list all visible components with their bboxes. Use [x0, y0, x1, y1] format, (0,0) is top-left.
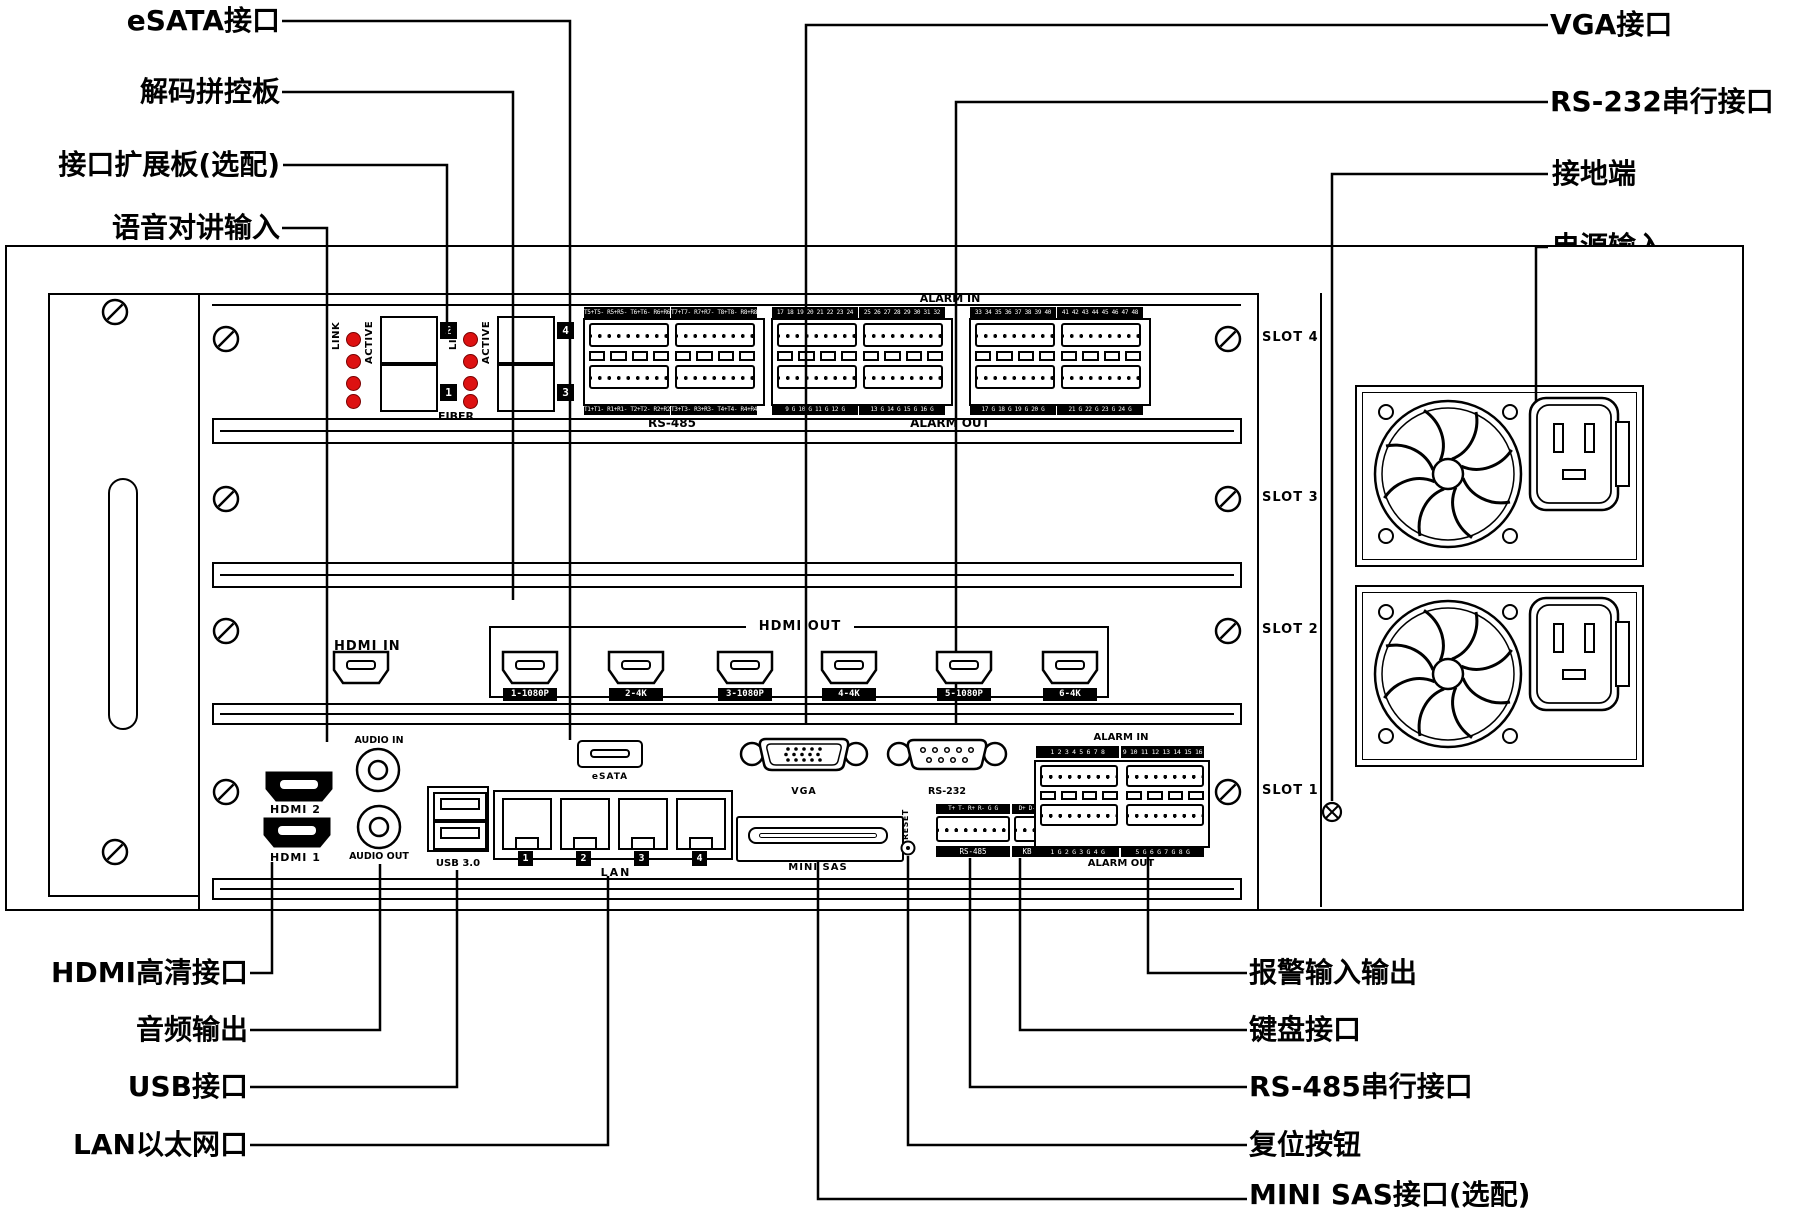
lan-port [618, 798, 668, 850]
slot2-label: SLOT 2 [1262, 622, 1319, 637]
hdmi-out-recess [489, 626, 1109, 698]
terminal-connector [589, 323, 669, 347]
alarm1-header: 9 10 11 12 13 14 15 16 [1121, 746, 1204, 758]
terminal-connector [863, 365, 943, 389]
hdmi-out-port-label: 5-1080P [937, 688, 991, 701]
lan-port [502, 798, 552, 850]
fiber-label: FIBER [427, 410, 485, 423]
mini-sas-connector [748, 827, 888, 844]
usb-label: USB 3.0 [428, 858, 488, 869]
hdmi-out-port-label: 1-1080P [503, 688, 557, 701]
alarm1-in-title: ALARM IN [1078, 732, 1164, 743]
terminal-connector [1061, 323, 1141, 347]
lan-port-badge: 1 [518, 851, 533, 866]
alarm-out-footer: 21 G 22 G 23 G 24 G [1057, 404, 1143, 415]
rs485-header: T7+T7- R7+R7- T8+T8- R8+R8- [671, 307, 757, 318]
alarm-in-header: 41 42 43 44 45 46 47 48 [1057, 307, 1143, 318]
fiber-led [463, 332, 478, 347]
fiber-badge-1: 1 [440, 384, 457, 401]
mini-sas-label: MINI SAS [776, 862, 860, 873]
alarm-in-header: 25 26 27 28 29 30 31 32 [859, 307, 945, 318]
terminal-connector [975, 365, 1055, 389]
rs485-board-label: RS-485 [627, 416, 717, 430]
terminal-connector [1126, 765, 1204, 787]
slot-rail-bottom [212, 878, 1242, 900]
hdmi-out-port-label: 3-1080P [718, 688, 772, 701]
power-supply-2 [1355, 585, 1644, 767]
sfp-cage [380, 364, 438, 412]
alarm1-footer: 5 G 6 G 7 G 8 G [1121, 846, 1204, 857]
slot-rail-4-3 [212, 418, 1242, 444]
terminal-connector [777, 365, 857, 389]
jumper-row [863, 351, 943, 361]
fiber-link-label-1: LINK [331, 300, 342, 350]
jumper-row [675, 351, 755, 361]
alarm-in-header: 17 18 19 20 21 22 23 24 [772, 307, 858, 318]
terminal-connector [863, 323, 943, 347]
slot-rail-2-1 [212, 703, 1242, 725]
fiber-active-label-2: ACTIVE [481, 300, 492, 364]
fiber-led [346, 332, 361, 347]
alarm-in-header: 33 34 35 36 37 38 39 40 [970, 307, 1056, 318]
alarm1-out-title: ALARM OUT [1078, 858, 1164, 869]
alarm-out-footer: 9 G 10 G 11 G 12 G [772, 404, 858, 415]
fiber-led [346, 354, 361, 369]
terminal-connector [936, 816, 1010, 842]
slot3-label: SLOT 3 [1262, 490, 1319, 505]
reset-label: RESET [901, 794, 910, 840]
lan-port [560, 798, 610, 850]
serial-header: T+ T- R+ R- G G [936, 804, 1010, 814]
hdmi2-label: HDMI 2 [270, 803, 332, 816]
fiber-badge-4: 4 [557, 322, 574, 339]
terminal-connector [777, 323, 857, 347]
jumper-row [975, 351, 1055, 361]
jumper-row [1061, 351, 1141, 361]
terminal-connector [1040, 765, 1118, 787]
callout-audio-out: 音频输出 [30, 1013, 248, 1047]
fiber-led [463, 394, 478, 409]
rs485-header: T5+T5- R5+R5- T6+T6- R6+R6- [584, 307, 670, 318]
terminal-connector [1061, 365, 1141, 389]
alarm1-header: 1 2 3 4 5 6 7 8 [1036, 746, 1119, 758]
leader-lan [250, 876, 608, 1145]
hdmi-out-port-label: 4-4K [822, 688, 876, 701]
fiber-link-label-2: LINK [448, 300, 459, 350]
callout-ground: 接地端 [1552, 157, 1636, 191]
esata-label: eSATA [586, 772, 634, 782]
fiber-led [463, 376, 478, 391]
callout-esata: eSATA接口 [30, 4, 280, 38]
usb-port [433, 792, 487, 821]
terminal-connector [975, 323, 1055, 347]
power-supply-1 [1355, 385, 1644, 567]
alarm-out-footer: 17 G 18 G 19 G 20 G [970, 404, 1056, 415]
sfp-cage [497, 364, 555, 412]
lan-port [676, 798, 726, 850]
lan-port-badge: 2 [576, 851, 591, 866]
callout-reset: 复位按钮 [1249, 1128, 1361, 1162]
esata-port [577, 740, 643, 768]
callout-rs232: RS-232串行接口 [1550, 85, 1774, 119]
audio-out-label: AUDIO OUT [344, 851, 414, 862]
hdmi-out-label: HDMI OUT [746, 619, 854, 634]
serial-footer-rs485: RS-485 [936, 846, 1010, 857]
fiber-led [346, 394, 361, 409]
callout-lan: LAN以太网口 [26, 1128, 248, 1162]
hdmi-out-port-label: 6-4K [1043, 688, 1097, 701]
terminal-connector [1126, 804, 1204, 826]
callout-audio-talk-in: 语音对讲输入 [30, 211, 280, 245]
rs485-footer: T3+T3- R3+R3- T4+T4- R4+R4- [671, 404, 757, 415]
lan-port-badge: 3 [634, 851, 649, 866]
alarm1-footer: 1 G 2 G 3 G 4 G [1036, 846, 1119, 857]
fiber-led [346, 376, 361, 391]
fiber-active-label-1: ACTIVE [364, 300, 375, 364]
callout-alarm-io: 报警输入输出 [1249, 956, 1417, 990]
lan-port-badge: 4 [692, 851, 707, 866]
callout-hdmi: HDMI高清接口 [30, 956, 248, 990]
rs232-label: RS-232 [921, 786, 973, 797]
alarm-out-footer: 13 G 14 G 15 G 16 G [859, 404, 945, 415]
rs485-footer: T1+T1- R1+R1- T2+T2- R2+R2- [584, 404, 670, 415]
callout-mini-sas: MINI SAS接口(选配) [1249, 1178, 1530, 1211]
alarm-out-title: ALARM OUT [898, 416, 1002, 430]
callout-rs485: RS-485串行接口 [1249, 1070, 1473, 1104]
hdmi-in-label: HDMI IN [334, 639, 401, 654]
terminal-connector [675, 323, 755, 347]
callout-vga: VGA接口 [1550, 8, 1672, 42]
terminal-connector [589, 365, 669, 389]
bracket-handle-slot [108, 478, 138, 730]
audio-in-label: AUDIO IN [348, 735, 410, 746]
fiber-led [463, 354, 478, 369]
slot4-label: SLOT 4 [1262, 330, 1319, 345]
jumper-row [1040, 791, 1118, 800]
slot1-label: SLOT 1 [1262, 783, 1319, 798]
hdmi1-label: HDMI 1 [270, 851, 332, 864]
callout-decoder-board: 解码拼控板 [30, 75, 280, 109]
fiber-badge-3: 3 [557, 384, 574, 401]
jumper-row [777, 351, 857, 361]
callout-keyboard: 键盘接口 [1249, 1013, 1361, 1047]
psu-divider-line [1320, 293, 1322, 907]
sfp-cage [497, 316, 555, 364]
usb-port [433, 821, 487, 850]
alarm-in-title: ALARM IN [898, 292, 1002, 305]
slot-rail-3-2 [212, 562, 1242, 588]
terminal-connector [1040, 804, 1118, 826]
callout-usb: USB接口 [30, 1070, 248, 1104]
jumper-row [589, 351, 669, 361]
sfp-cage [380, 316, 438, 364]
vga-label: VGA [782, 786, 826, 797]
rear-panel-diagram: eSATA接口 解码拼控板 接口扩展板(选配) 语音对讲输入 VGA接口 RS-… [0, 0, 1800, 1211]
terminal-connector [675, 365, 755, 389]
callout-expansion-board: 接口扩展板(选配) [10, 148, 280, 182]
hdmi-out-port-label: 2-4K [609, 688, 663, 701]
lan-label: LAN [594, 866, 638, 879]
jumper-row [1126, 791, 1204, 800]
